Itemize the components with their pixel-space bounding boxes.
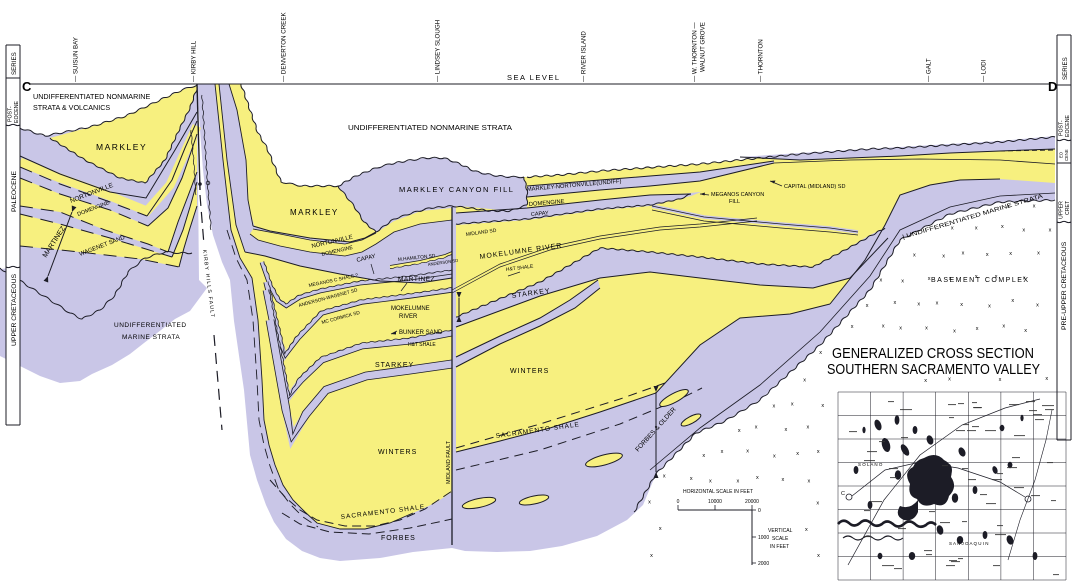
svg-text:x: x [1011, 298, 1014, 304]
svg-text:x: x [808, 479, 811, 485]
svg-text:STRATA & VOLCANICS: STRATA & VOLCANICS [33, 103, 110, 112]
svg-text:— DENVERTON CREEK: — DENVERTON CREEK [281, 12, 288, 82]
svg-text:x: x [975, 226, 978, 232]
svg-text:10000: 10000 [708, 499, 722, 505]
svg-text:— GALT: — GALT [926, 58, 933, 82]
svg-text:x: x [962, 250, 965, 256]
svg-text:x: x [1022, 228, 1025, 234]
svg-text:2000: 2000 [758, 561, 769, 567]
svg-text:x: x [709, 478, 712, 484]
svg-text:x: x [960, 302, 963, 308]
svg-text:x: x [893, 300, 896, 306]
svg-text:x: x [999, 377, 1002, 383]
svg-text:x: x [1049, 228, 1052, 234]
svg-text:UPPER CRETACEOUS: UPPER CRETACEOUS [11, 274, 18, 346]
svg-text:S A N J O A Q U I N: S A N J O A Q U I N [949, 541, 989, 546]
svg-text:WALNUT GROVE: WALNUT GROVE [700, 22, 707, 72]
svg-text:FILL: FILL [729, 199, 740, 205]
svg-text:x: x [659, 526, 662, 532]
svg-text:x: x [690, 476, 693, 482]
svg-text:UNDIFFERENTIATED: UNDIFFERENTIATED [114, 322, 187, 329]
svg-text:x: x [773, 403, 776, 409]
svg-text:x: x [817, 553, 820, 559]
svg-text:x: x [1033, 203, 1036, 209]
svg-text:MOKELUMNE: MOKELUMNE [391, 306, 430, 312]
svg-text:x: x [882, 324, 885, 330]
svg-text:x: x [1024, 328, 1027, 334]
svg-text:POST-: POST- [8, 106, 14, 122]
svg-text:x: x [1001, 224, 1004, 230]
svg-text:FORBES: FORBES [381, 535, 416, 542]
svg-text:SOUTHERN SACRAMENTO VALLEY: SOUTHERN SACRAMENTO VALLEY [827, 361, 1040, 378]
svg-text:WINTERS: WINTERS [378, 449, 417, 456]
svg-text:x: x [924, 378, 927, 384]
svg-text:x: x [755, 425, 758, 431]
svg-text:UPPER: UPPER [1059, 201, 1065, 219]
svg-text:x: x [785, 427, 788, 433]
svg-text:x: x [866, 303, 869, 309]
svg-text:x: x [976, 326, 979, 332]
svg-text:x: x [756, 475, 759, 481]
svg-text:x: x [925, 325, 928, 331]
svg-text:x: x [986, 252, 989, 258]
svg-text:S O L A N O: S O L A N O [858, 462, 883, 467]
svg-text:PALEOCENE: PALEOCENE [11, 170, 18, 212]
svg-text:C: C [22, 79, 32, 94]
svg-text:MARTINEZ: MARTINEZ [398, 276, 435, 283]
svg-text:POST-: POST- [1059, 120, 1065, 136]
svg-text:UNDIFFERENTIATED NONMARINE STR: UNDIFFERENTIATED NONMARINE STRATA [348, 123, 512, 132]
svg-text:PRE-UPPER CRETACEOUS: PRE-UPPER CRETACEOUS [1061, 241, 1068, 330]
svg-text:BUNKER SAND: BUNKER SAND [399, 330, 443, 336]
svg-text:MEGANOS CANYON: MEGANOS CANYON [711, 192, 764, 198]
svg-text:x: x [805, 527, 808, 533]
svg-text:x: x [1009, 251, 1012, 257]
svg-text:x: x [773, 453, 776, 459]
svg-text:x: x [953, 328, 956, 334]
svg-text:SERIES: SERIES [1062, 57, 1069, 80]
svg-text:x: x [791, 402, 794, 408]
svg-text:x: x [821, 403, 824, 409]
svg-text:CRET: CRET [1065, 200, 1071, 215]
svg-text:— LINDSEY SLOUGH: — LINDSEY SLOUGH [435, 20, 442, 82]
svg-text:x: x [942, 254, 945, 260]
svg-text:x: x [816, 500, 819, 506]
svg-text:x: x [1037, 250, 1040, 256]
svg-text:CENE: CENE [1064, 149, 1069, 161]
svg-text:x: x [913, 252, 916, 258]
svg-text:x: x [796, 451, 799, 457]
svg-text:x: x [899, 326, 902, 332]
svg-text:BASEMENT COMPLEX: BASEMENT COMPLEX [931, 277, 1030, 284]
svg-text:x: x [781, 477, 784, 483]
svg-text:x: x [702, 453, 705, 459]
svg-text:SERIES: SERIES [11, 52, 18, 75]
svg-text:— KIRBY HILL: — KIRBY HILL [191, 40, 198, 82]
svg-text:x: x [1002, 324, 1005, 330]
svg-text:SCALE: SCALE [772, 536, 789, 542]
svg-text:x: x [663, 473, 666, 479]
svg-text:x: x [817, 449, 820, 455]
svg-text:x: x [1036, 303, 1039, 309]
svg-text:STARKEY: STARKEY [375, 362, 414, 369]
svg-text:GENERALIZED CROSS SECTION: GENERALIZED CROSS SECTION [832, 345, 1034, 362]
svg-text:0: 0 [758, 508, 761, 514]
svg-text:EOCENE: EOCENE [14, 101, 20, 123]
svg-text:x: x [803, 378, 806, 384]
svg-text:EOCENE: EOCENE [1065, 115, 1071, 137]
svg-text:SEA LEVEL: SEA LEVEL [507, 73, 561, 82]
svg-text:— W. THORNTON —: — W. THORNTON — [692, 22, 699, 82]
svg-text:x: x [988, 303, 991, 309]
svg-text:x: x [936, 301, 939, 307]
svg-text:MARINE STRATA: MARINE STRATA [122, 334, 180, 341]
svg-text:H&T SHALE: H&T SHALE [408, 342, 436, 348]
svg-text:HORIZONTAL SCALE IN FEET: HORIZONTAL SCALE IN FEET [683, 489, 753, 495]
svg-text:x: x [901, 278, 904, 284]
svg-text:EO: EO [1059, 151, 1064, 158]
svg-text:1000: 1000 [758, 535, 769, 541]
svg-text:— SUISUN BAY: — SUISUN BAY [73, 37, 80, 82]
svg-text:x: x [880, 278, 883, 284]
svg-text:C: C [841, 491, 845, 497]
svg-text:IN FEET: IN FEET [770, 544, 789, 550]
svg-text:x: x [721, 449, 724, 455]
svg-text:MARKLEY: MARKLEY [290, 208, 339, 217]
svg-text:D: D [1048, 79, 1057, 94]
svg-text:— RIVER ISLAND: — RIVER ISLAND [581, 31, 588, 82]
svg-text:MIDLAND FAULT: MIDLAND FAULT [446, 440, 452, 484]
svg-text:CAPITAL (MIDLAND) SD: CAPITAL (MIDLAND) SD [784, 184, 845, 190]
svg-text:x: x [648, 499, 651, 505]
svg-text:MARKLEY: MARKLEY [96, 142, 147, 152]
svg-text:x: x [737, 479, 740, 485]
svg-text:x: x [650, 553, 653, 559]
svg-text:x: x [819, 350, 822, 356]
svg-text:— LODI: — LODI [981, 59, 988, 82]
svg-text:x: x [851, 324, 854, 330]
svg-text:x: x [806, 424, 809, 430]
svg-text:UNDIFFERENTIATED NONMARINE: UNDIFFERENTIATED NONMARINE [33, 92, 150, 101]
svg-text:x: x [1045, 376, 1048, 382]
svg-text:VERTICAL: VERTICAL [768, 528, 793, 534]
svg-text:WINTERS: WINTERS [510, 368, 549, 375]
svg-text:— THORNTON: — THORNTON [758, 39, 765, 82]
svg-text:x: x [917, 301, 920, 307]
svg-text:x: x [738, 428, 741, 434]
svg-text:RIVER: RIVER [399, 314, 418, 320]
svg-text:x: x [746, 448, 749, 454]
svg-text:0: 0 [677, 499, 680, 505]
svg-text:MARKLEY CANYON FILL: MARKLEY CANYON FILL [399, 185, 514, 194]
svg-text:20000: 20000 [745, 499, 759, 505]
